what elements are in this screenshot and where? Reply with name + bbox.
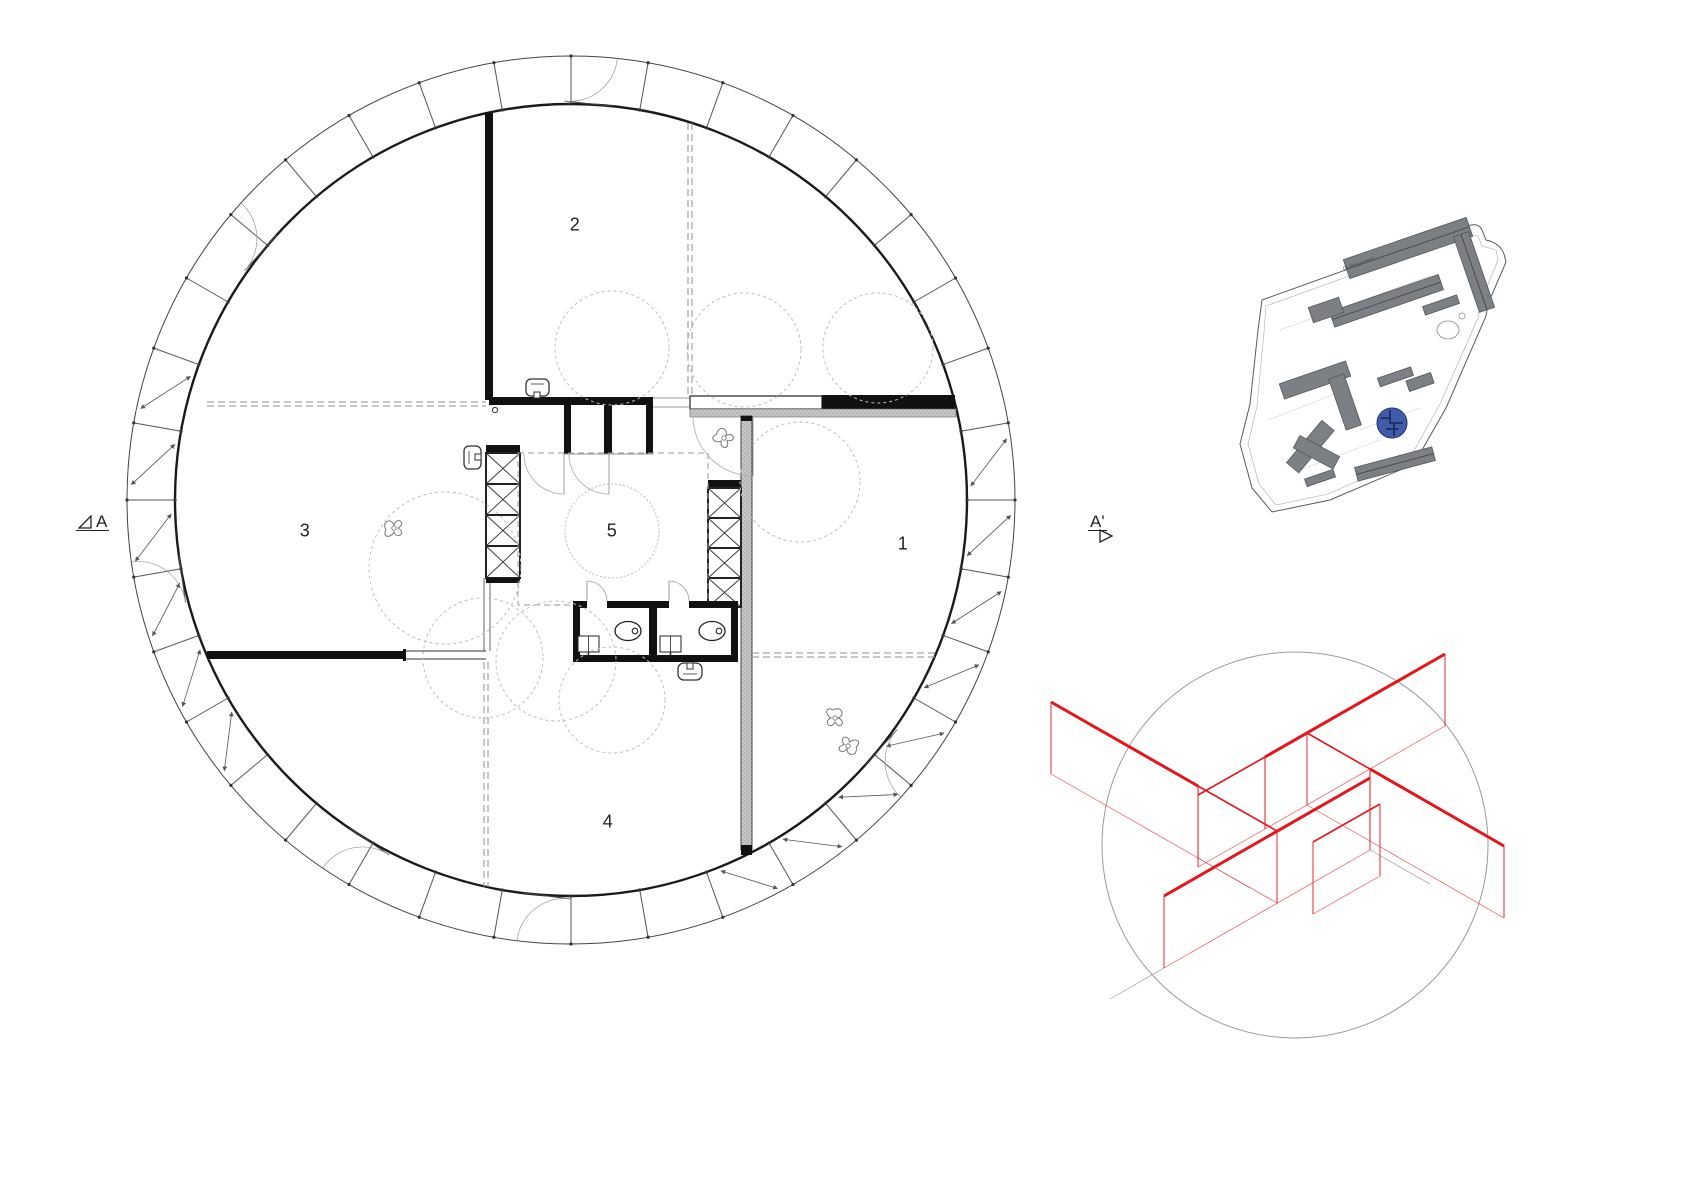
plant-icon <box>827 709 843 726</box>
wall-west-arm <box>207 651 405 659</box>
core-north-wall <box>489 397 653 405</box>
axon-circle <box>1102 652 1488 1038</box>
site-pond <box>1437 321 1459 339</box>
plant-icon <box>385 521 402 537</box>
play-circles <box>369 291 933 753</box>
section-marker-a-prime: A' <box>1088 507 1107 531</box>
section-triangle-icon <box>1099 529 1113 543</box>
section-marker-label: A <box>96 514 107 529</box>
site-plan <box>1240 217 1506 512</box>
wall-east-arm <box>690 396 822 409</box>
axon-diagram <box>1051 652 1504 1038</box>
sink <box>526 379 549 398</box>
wall-south-arm <box>741 416 752 850</box>
sink <box>678 663 702 680</box>
drawing-canvas <box>0 0 1684 1191</box>
architectural-drawing-sheet: { "floor_plan": { "room_labels": { "r1":… <box>0 0 1684 1191</box>
door-pivot-dot <box>492 407 497 412</box>
plant-icon <box>838 736 859 757</box>
cabinet-west <box>486 445 520 583</box>
room-label-5: 5 <box>607 521 618 542</box>
room-boundary-dashed-lines <box>207 123 935 887</box>
toilet-fixture <box>699 622 725 641</box>
section-marker-label: A' <box>1090 514 1105 529</box>
perimeter-ring <box>125 54 1016 945</box>
toilet-fixture <box>615 622 641 641</box>
wall-north-arm <box>485 112 493 400</box>
site-highlighted-pavilion <box>1377 408 1407 438</box>
room-label-4: 4 <box>603 812 614 833</box>
cabinet-east <box>708 480 741 607</box>
room-label-1: 1 <box>898 534 909 555</box>
room-label-3: 3 <box>300 521 311 542</box>
section-triangle-icon <box>78 515 92 529</box>
plant-symbols <box>385 426 860 756</box>
axon-walls <box>1051 654 1504 968</box>
room-label-2: 2 <box>570 215 581 236</box>
sink <box>464 446 481 469</box>
plant-icon <box>711 426 734 449</box>
section-marker-a: A <box>76 507 109 531</box>
